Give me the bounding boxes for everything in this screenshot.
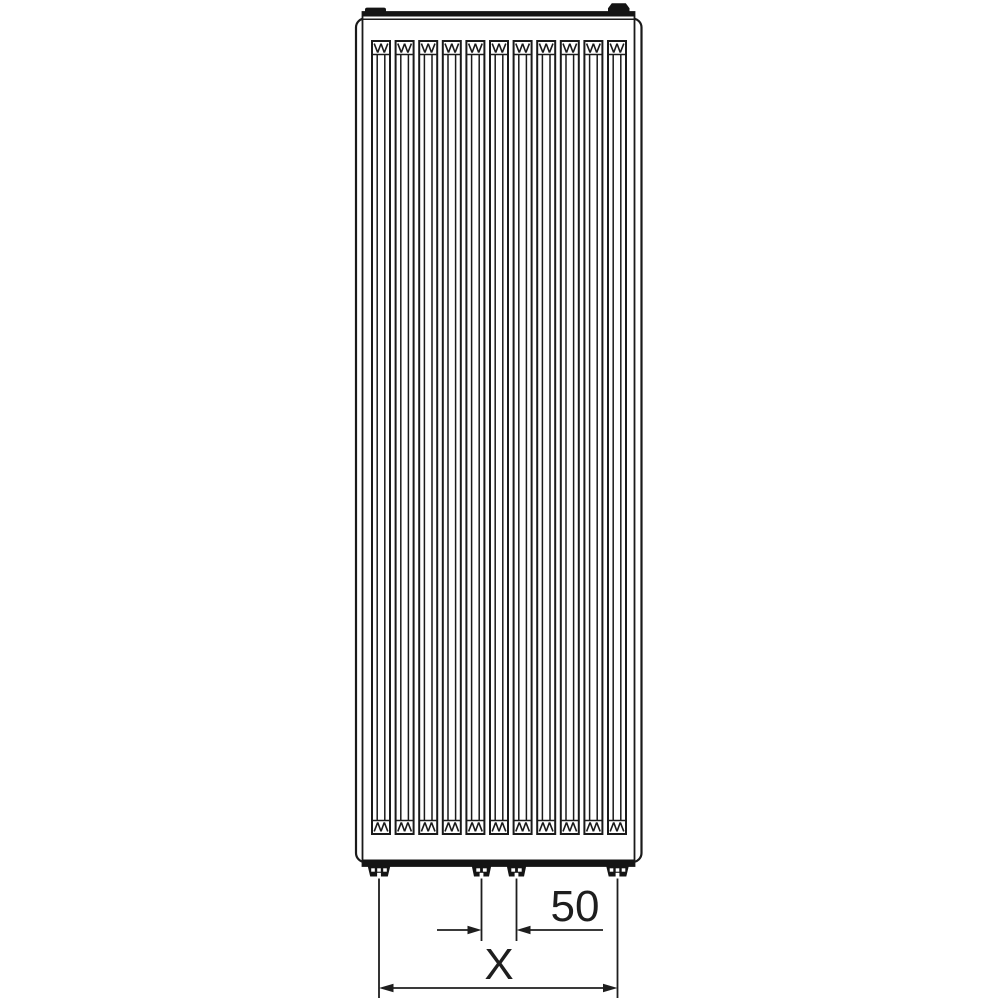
drawing-canvas: 50 X — [0, 0, 1000, 1000]
radiator-bottom-edge — [363, 860, 635, 867]
arrowhead-right — [468, 926, 482, 934]
radiator-top-edge — [363, 12, 635, 17]
arrowhead-left — [379, 984, 394, 992]
connector-middle-2 — [507, 866, 526, 877]
radiator-body — [356, 12, 642, 867]
arrowhead-left — [517, 926, 531, 934]
dimension-connection-spacing: 50 — [437, 879, 603, 942]
arrowhead-right — [603, 984, 618, 992]
radiator-front-panel — [363, 12, 635, 866]
connector-left — [368, 866, 391, 877]
bottom-connectors — [368, 866, 629, 877]
connector-middle-1 — [472, 866, 491, 877]
hanging-bracket-tab — [365, 8, 386, 13]
air-vent-cap — [608, 3, 630, 12]
dimension-label-50: 50 — [551, 882, 600, 931]
dimension-label-x: X — [484, 940, 513, 989]
connector-right — [606, 866, 629, 877]
radiator-technical-drawing: 50 X — [0, 0, 1000, 1000]
